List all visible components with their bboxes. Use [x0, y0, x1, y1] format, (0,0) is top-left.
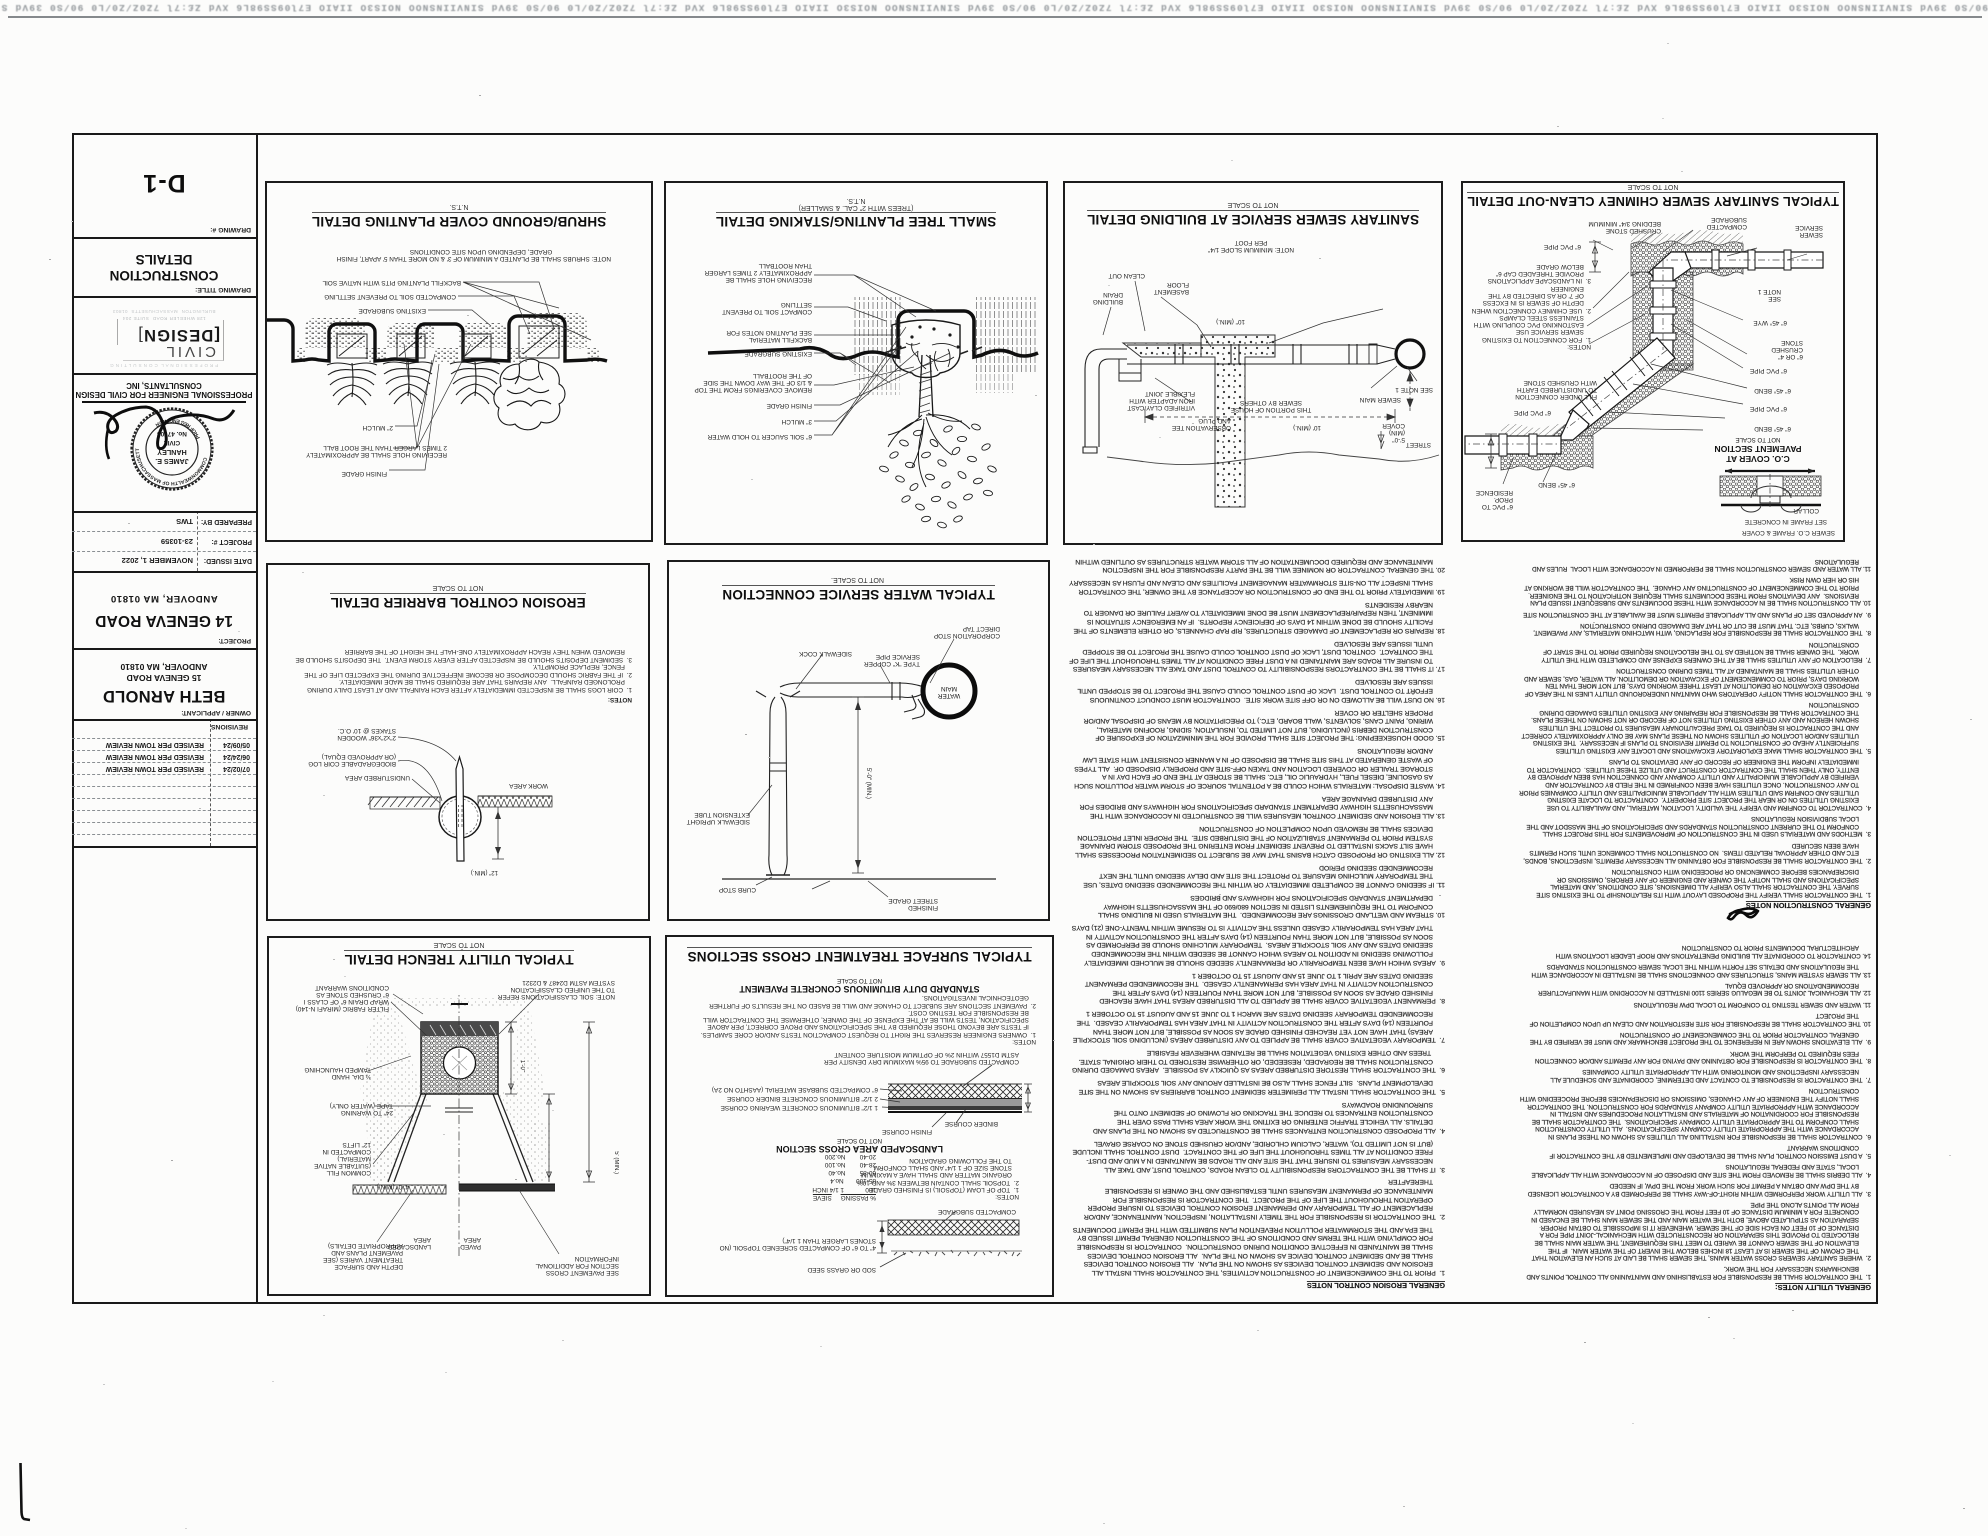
svg-text:JAMES E.: JAMES E. [155, 457, 189, 466]
